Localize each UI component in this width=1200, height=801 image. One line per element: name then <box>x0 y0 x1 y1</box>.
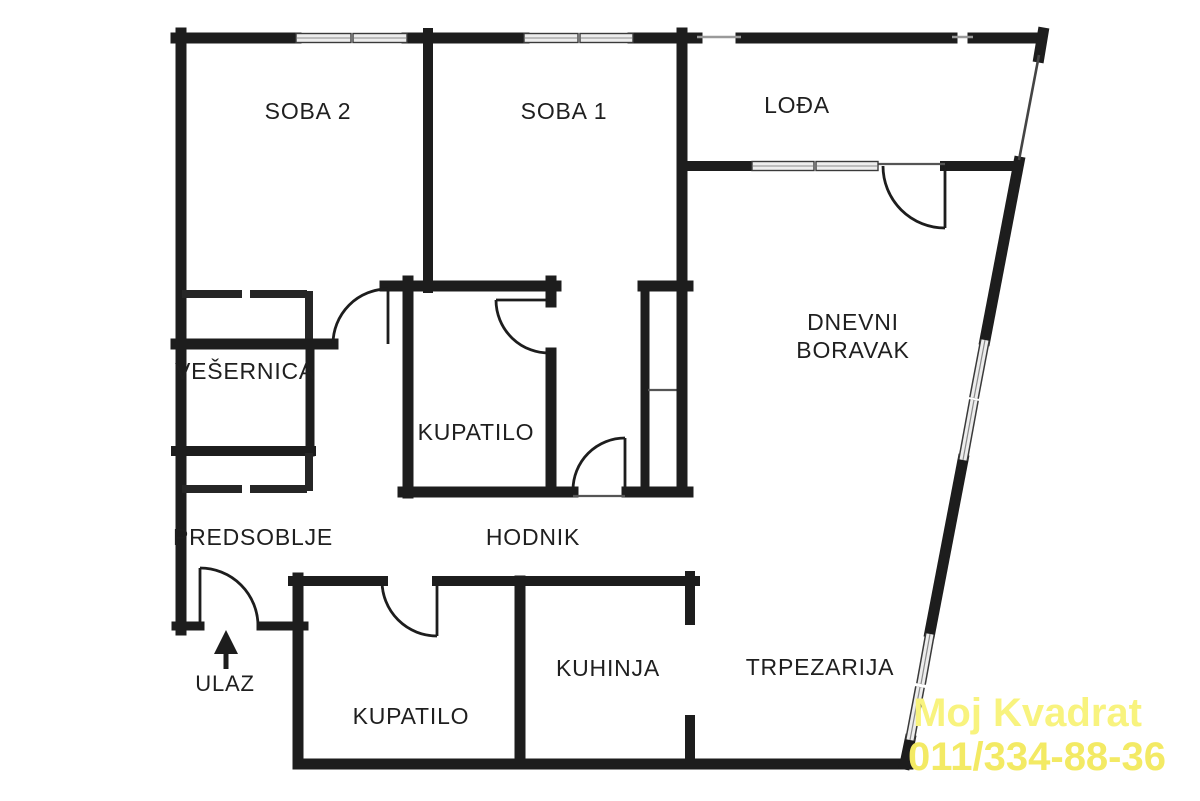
watermark: Moj Kvadrat 011/334-88-36 <box>908 691 1166 779</box>
door-loggia <box>883 166 945 228</box>
window-soba2-1 <box>296 34 351 43</box>
room-label-ulaz: ULAZ <box>195 671 254 696</box>
window-loggia-2 <box>816 162 878 171</box>
window-soba1-2 <box>580 34 633 43</box>
door-hodnik-corridor <box>573 438 625 490</box>
room-label-soba2: SOBA 2 <box>265 98 352 124</box>
entrance-arrow <box>214 630 238 669</box>
room-label-dnevni: DNEVNI <box>807 309 899 335</box>
room-label-kuhinja: KUHINJA <box>556 655 660 681</box>
loggia-rail-slant <box>1019 55 1039 160</box>
window-slant-1 <box>974 340 985 398</box>
room-label-vesernica: VEŠERNICA <box>175 357 315 384</box>
room-label-kupatilo-lower: KUPATILO <box>353 703 470 729</box>
watermark-phone: 011/334-88-36 <box>908 735 1166 779</box>
door-entry <box>200 568 258 626</box>
window-slant-3 <box>921 634 930 684</box>
door-soba2 <box>333 289 388 344</box>
door-kupatilo-lower <box>382 581 437 636</box>
room-label-soba1: SOBA 1 <box>521 98 608 124</box>
room-label-hodnik: HODNIK <box>486 524 580 550</box>
room-label-kupatilo-upper: KUPATILO <box>418 419 535 445</box>
door-kupatilo-upper <box>496 300 551 353</box>
floor-plan-svg: SOBA 2 SOBA 1 LOĐA DNEVNI BORAVAK VEŠERN… <box>0 0 1200 801</box>
room-labels: SOBA 2 SOBA 1 LOĐA DNEVNI BORAVAK VEŠERN… <box>173 92 910 729</box>
floor-plan-image: SOBA 2 SOBA 1 LOĐA DNEVNI BORAVAK VEŠERN… <box>0 0 1200 801</box>
watermark-brand: Moj Kvadrat <box>913 691 1142 735</box>
room-label-predsoblje: PREDSOBLJE <box>173 524 333 550</box>
room-label-lodja: LOĐA <box>764 92 830 118</box>
room-label-boravak: BORAVAK <box>796 337 909 363</box>
window-slant-2 <box>963 400 974 460</box>
window-soba2-2 <box>353 34 407 43</box>
room-label-trpezarija: TRPEZARIJA <box>746 654 895 680</box>
window-soba1-1 <box>524 34 578 43</box>
window-loggia-1 <box>752 162 814 171</box>
